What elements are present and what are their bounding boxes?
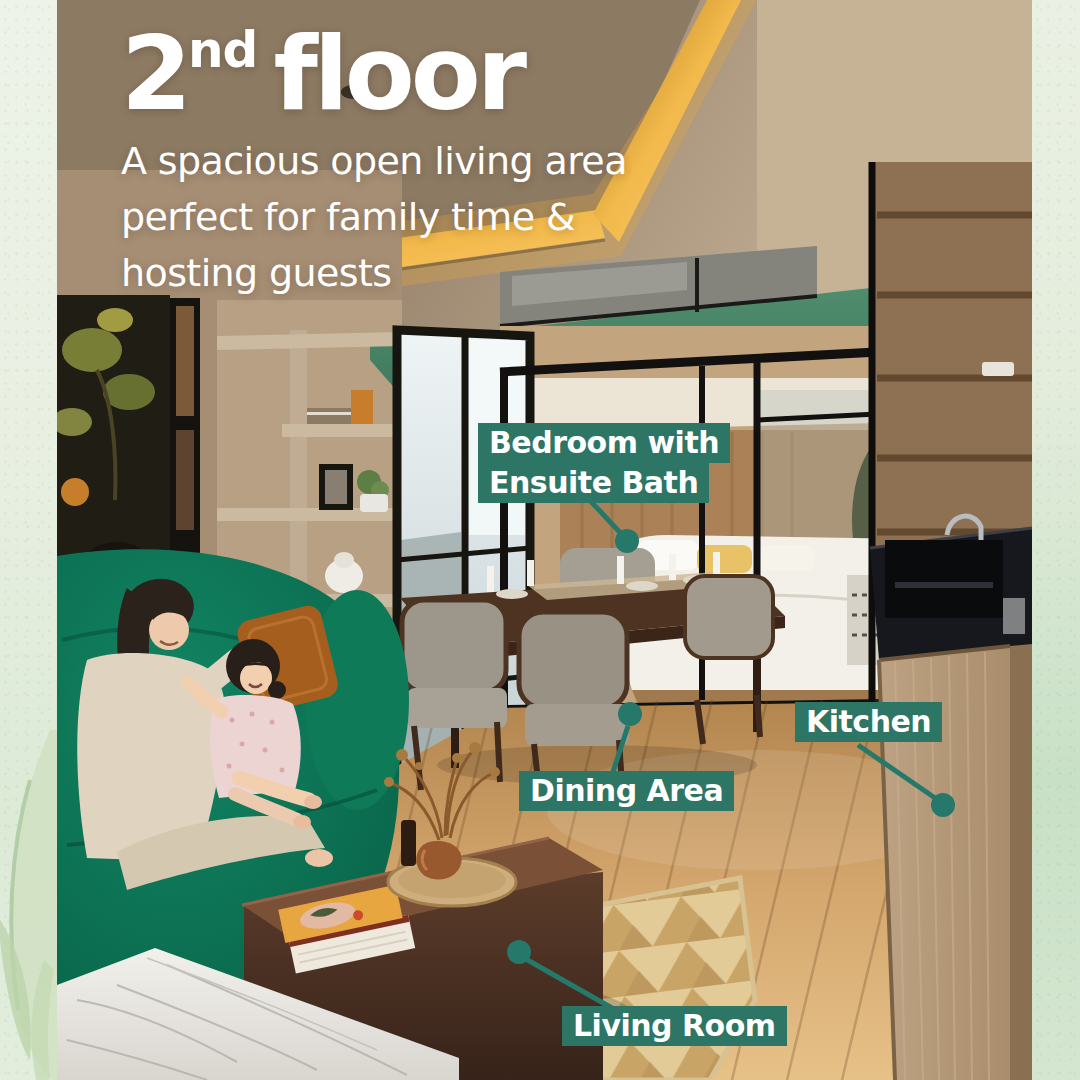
paper-border-right — [1032, 0, 1080, 1080]
paper-border-left — [0, 0, 57, 1080]
callout-bedroom: Bedroom with Ensuite Bath — [478, 423, 730, 503]
callout-bedroom-line2: Ensuite Bath — [478, 463, 709, 503]
headline-block: 2ndfloor A spacious open living area per… — [121, 20, 627, 301]
diffuser-bottle — [401, 820, 416, 866]
callout-bedroom-line1: Bedroom with — [478, 423, 730, 463]
mustard-pillow — [697, 545, 752, 573]
title-ordinal: nd — [188, 21, 257, 79]
subtitle: A spacious open living area perfect for … — [121, 133, 627, 301]
callout-dining-area: Dining Area — [519, 771, 734, 811]
callout-kitchen: Kitchen — [795, 702, 942, 742]
subtitle-line: A spacious open living area — [121, 133, 627, 189]
subtitle-line: hosting guests — [121, 245, 627, 301]
orange-box — [351, 390, 373, 424]
title-number: 2 — [121, 14, 188, 133]
callout-dining-label: Dining Area — [519, 771, 734, 811]
callout-living-room-label: Living Room — [562, 1006, 787, 1046]
callout-living-room: Living Room — [562, 1006, 787, 1046]
social-post-canvas: 2ndfloor A spacious open living area per… — [0, 0, 1080, 1080]
subtitle-line: perfect for family time & — [121, 189, 627, 245]
callout-kitchen-label: Kitchen — [795, 702, 942, 742]
page-title: 2ndfloor — [121, 20, 627, 127]
title-word: floor — [273, 14, 523, 133]
leaf-decoration — [0, 720, 57, 1080]
